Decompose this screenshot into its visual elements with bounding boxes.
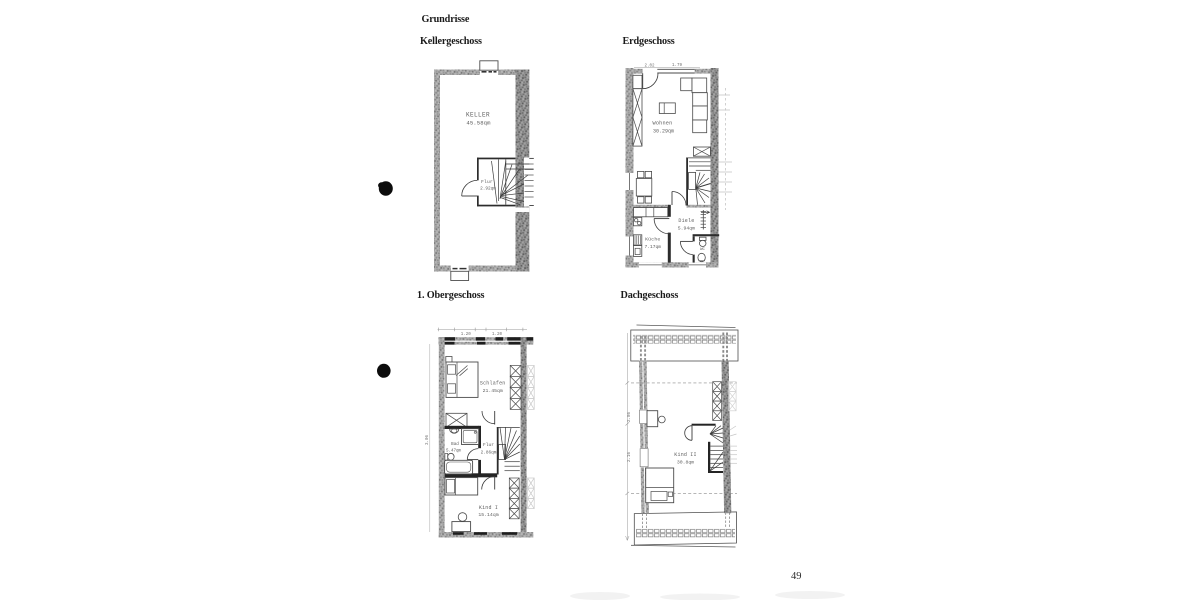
svg-text:Wohnen: Wohnen (653, 121, 673, 127)
svg-text:5.94qm: 5.94qm (678, 226, 695, 232)
svg-text:Kind II: Kind II (674, 452, 696, 458)
svg-text:2.86qm: 2.86qm (481, 450, 497, 455)
svg-text:2.16: 2.16 (628, 451, 632, 462)
svg-text:1.79: 1.79 (672, 64, 683, 68)
svg-text:15.14qm: 15.14qm (478, 512, 498, 518)
svg-text:Schlafen: Schlafen (480, 381, 506, 387)
svg-text:30.8qm: 30.8qm (677, 460, 694, 466)
svg-text:Flur: Flur (483, 442, 494, 448)
svg-text:1.20: 1.20 (461, 333, 472, 337)
svg-text:1.20: 1.20 (492, 333, 503, 337)
svg-text:Bad: Bad (451, 442, 459, 447)
svg-text:2.92qm: 2.92qm (480, 187, 496, 192)
svg-text:Diele: Diele (678, 218, 694, 224)
svg-text:2.86: 2.86 (628, 411, 632, 422)
svg-text:5.47qm: 5.47qm (446, 449, 462, 453)
svg-text:2.02: 2.02 (644, 64, 655, 68)
svg-text:Kind I: Kind I (479, 505, 498, 511)
svg-text:7.17qm: 7.17qm (645, 244, 662, 250)
svg-text:30.29qm: 30.29qm (653, 129, 674, 135)
svg-text:WC: WC (700, 248, 705, 252)
svg-text:21.45qm: 21.45qm (483, 388, 503, 394)
svg-text:45.58qm: 45.58qm (466, 120, 491, 127)
svg-text:Küche: Küche (645, 236, 660, 242)
svg-text:KELLER: KELLER (466, 112, 490, 119)
svg-text:3.06: 3.06 (426, 434, 430, 445)
svg-text:Flur: Flur (481, 179, 493, 185)
